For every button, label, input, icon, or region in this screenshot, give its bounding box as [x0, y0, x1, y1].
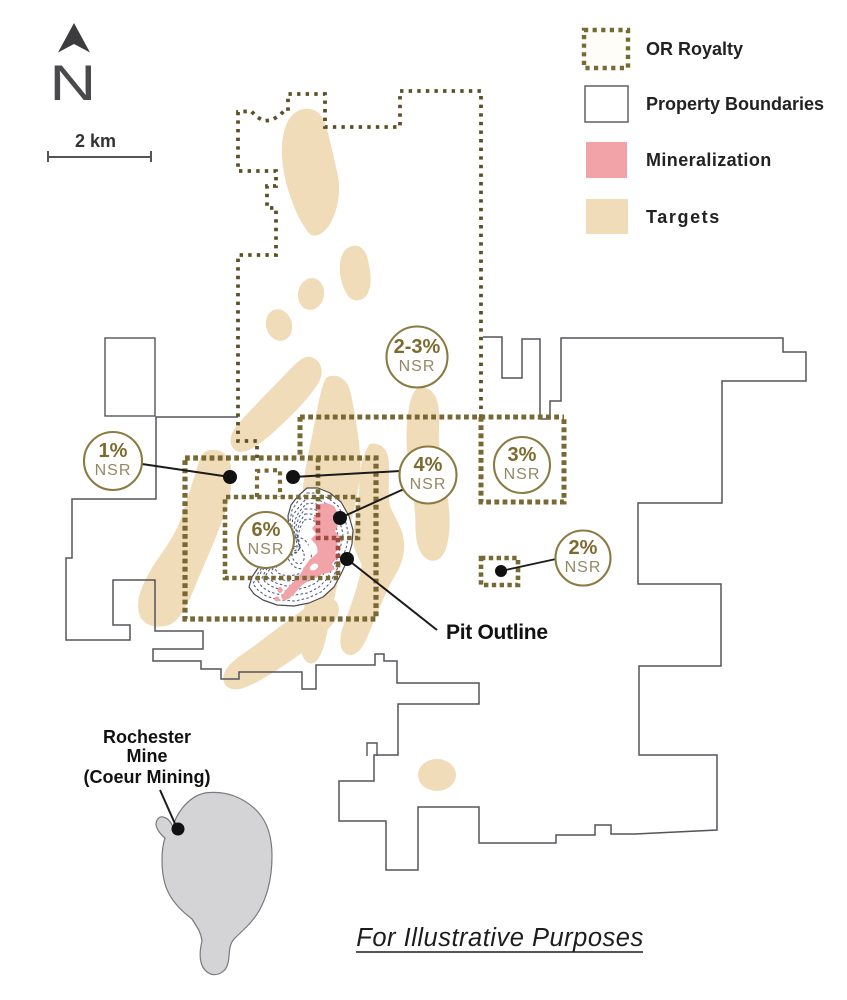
svg-text:NSR: NSR — [248, 541, 285, 558]
svg-text:Property Boundaries: Property Boundaries — [646, 94, 824, 114]
svg-text:(Coeur Mining): (Coeur Mining) — [84, 767, 211, 787]
svg-text:NSR: NSR — [410, 476, 447, 493]
svg-text:NSR: NSR — [95, 462, 132, 479]
svg-text:N: N — [49, 56, 96, 111]
svg-text:2-3%: 2-3% — [394, 336, 441, 358]
svg-text:Mineralization: Mineralization — [646, 150, 772, 170]
svg-text:4%: 4% — [414, 454, 443, 476]
svg-text:NSR: NSR — [504, 466, 541, 483]
svg-text:Pit Outline: Pit Outline — [446, 621, 548, 644]
svg-text:NSR: NSR — [565, 559, 602, 576]
svg-text:Mine: Mine — [126, 746, 167, 766]
svg-text:Targets: Targets — [646, 207, 721, 227]
svg-text:2 km: 2 km — [75, 131, 116, 151]
svg-text:2%: 2% — [569, 537, 598, 559]
svg-text:6%: 6% — [252, 519, 281, 541]
svg-text:3%: 3% — [508, 444, 537, 466]
svg-text:NSR: NSR — [399, 358, 436, 375]
svg-text:For Illustrative Purposes: For Illustrative Purposes — [356, 924, 643, 952]
svg-text:1%: 1% — [99, 440, 128, 462]
svg-text:Rochester: Rochester — [103, 727, 191, 747]
svg-text:OR Royalty: OR Royalty — [646, 39, 743, 59]
